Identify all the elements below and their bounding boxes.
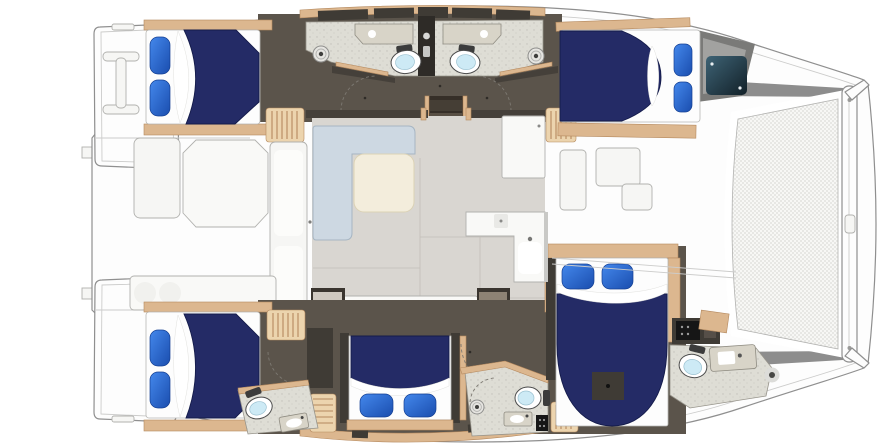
sink-starboard-mid (504, 412, 532, 426)
round-sink-icon (159, 282, 181, 304)
forward-crossbeam (842, 86, 857, 362)
toilet-starboard-mid (515, 387, 550, 409)
louver-locker (266, 108, 304, 142)
pillow (150, 330, 170, 366)
pillow (674, 44, 692, 76)
cockpit-table (183, 140, 268, 227)
louver-locker (267, 310, 305, 340)
pillow (360, 394, 393, 417)
bed-port-aft-cabin (144, 20, 272, 135)
duvet (351, 336, 449, 389)
floorplan-page: Catamaran yacht interior floor plan, top… (0, 0, 890, 446)
starboard-aft-head (238, 380, 318, 434)
electrical-panel-icon (676, 321, 700, 340)
duvet (184, 30, 259, 124)
trampoline (725, 90, 846, 358)
salon-forward-wall (306, 110, 428, 118)
pillow (150, 372, 170, 408)
fridge-cabinet (502, 116, 545, 178)
bed-starboard-mid-cabin (340, 333, 466, 430)
pillow (150, 80, 170, 116)
shower-drain-mid (470, 400, 484, 414)
shower-column (418, 16, 435, 76)
pillow (150, 37, 170, 74)
bed-port-forward-cabin (556, 18, 700, 139)
deck-hatch-icon (596, 148, 640, 186)
faucet-icon (528, 237, 532, 241)
shower-drain-port-forward (528, 48, 544, 64)
shelf-cabinet (307, 328, 333, 388)
windlass-icon (765, 368, 780, 383)
sink-icon (480, 30, 488, 38)
shower-drain-port-aft (313, 46, 329, 62)
sink-icon (368, 30, 376, 38)
coffee-table (354, 154, 414, 212)
bow-step (699, 310, 729, 333)
pillow (674, 82, 692, 112)
sink-starboard-forward (709, 344, 757, 371)
vanity-port-aft-head (355, 24, 413, 44)
deck-hatch-icon (622, 184, 652, 210)
shower-control-icon (423, 33, 430, 40)
duvet (560, 31, 661, 121)
pillow (562, 264, 594, 289)
vanity-port-forward-head (443, 24, 501, 44)
galley-sink (518, 242, 542, 274)
pillow (404, 394, 436, 417)
skylight-hatch-icon (706, 56, 747, 95)
cockpit-bench-forward (134, 138, 180, 218)
electrical-panel-icon (536, 415, 548, 431)
floorplan-canvas: Catamaran yacht interior floor plan, top… (0, 0, 890, 446)
round-sink-icon (134, 282, 156, 304)
deck-hatch-icon (560, 150, 586, 210)
